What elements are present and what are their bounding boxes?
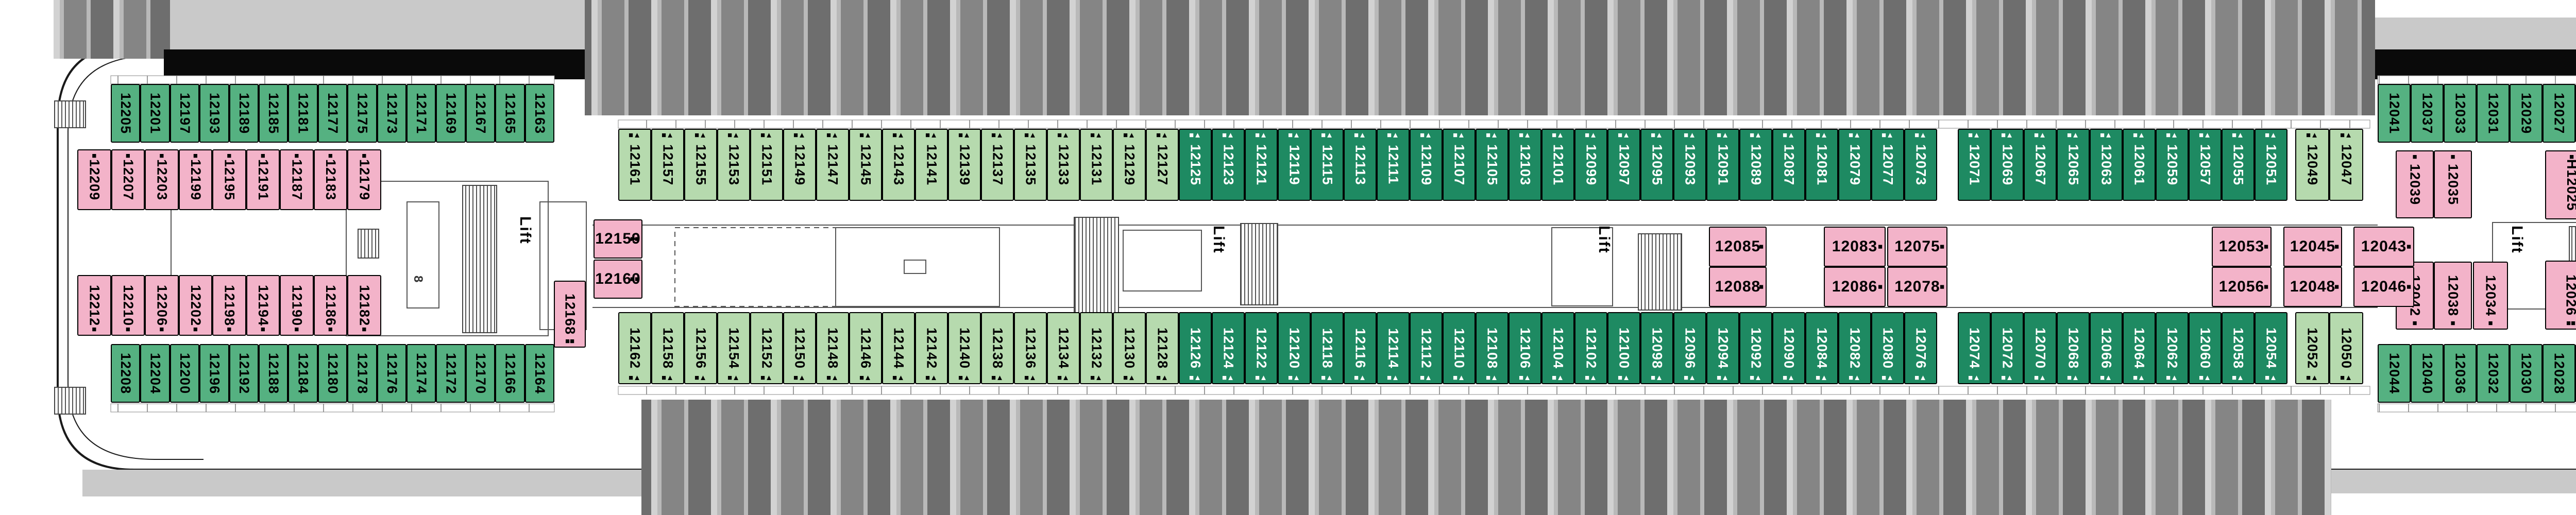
cabin-number: 12165 — [502, 93, 518, 134]
berth-icon: ■ — [146, 325, 178, 333]
cabin-12071[interactable]: ■▲12071 — [1958, 129, 1991, 201]
cabin-12156[interactable]: ■▲12156 — [684, 312, 717, 384]
cabin-12182[interactable]: ■12182 — [347, 275, 381, 336]
cabin-number: 12154 — [726, 328, 742, 369]
cabin-12064[interactable]: ■▲12064 — [2123, 312, 2156, 384]
berth-icon: ■▲ — [2223, 374, 2253, 382]
cabin-12122[interactable]: ■▲12122 — [1245, 312, 1278, 384]
cabin-12063[interactable]: ■▲12063 — [2090, 129, 2123, 201]
cabin-12178[interactable]: 12178 — [347, 344, 377, 403]
cabin-12052[interactable]: ■▲12052 — [2295, 312, 2329, 384]
cabin-12080[interactable]: ■▲12080 — [1871, 312, 1904, 384]
berth-icon: ■▲ — [619, 374, 650, 382]
cabin-12179[interactable]: ■12179 — [347, 149, 381, 210]
berth-icon: ■▲ — [2058, 131, 2089, 139]
cabin-12049[interactable]: ■▲12049 — [2295, 129, 2329, 201]
cabin-12040[interactable]: 12040 — [2411, 344, 2444, 403]
cabin-number: 12087 — [1781, 144, 1797, 185]
cabin-12077[interactable]: ■▲12077 — [1871, 129, 1904, 201]
cabin-12131[interactable]: ■▲12131 — [1080, 129, 1113, 201]
cabin-12171[interactable]: 12171 — [406, 84, 436, 143]
cabin-12200[interactable]: 12200 — [170, 344, 199, 403]
cabin-12154[interactable]: ■▲12154 — [717, 312, 750, 384]
cabin-12208[interactable]: 12208 — [111, 344, 140, 403]
berth-icon: ■▲ — [1147, 374, 1178, 382]
cabin-12203[interactable]: ■12203 — [145, 149, 179, 210]
berth-icon: ■▲ — [1806, 374, 1837, 382]
cabin-12146[interactable]: ■▲12146 — [849, 312, 882, 384]
cabin-12082[interactable]: ■▲12082 — [1838, 312, 1871, 384]
cabin-number: 12093 — [1682, 144, 1698, 185]
berth-icon: ■▲ — [949, 374, 980, 382]
berth-icon: ■▲ — [2124, 374, 2155, 382]
cabin-number: 12051 — [2263, 144, 2279, 185]
cabin-12085[interactable]: ■12085 — [1709, 227, 1767, 267]
cabin-number: 12141 — [924, 144, 940, 185]
cabin-12045[interactable]: ■12045 — [2283, 227, 2342, 267]
cabin-number: 12152 — [759, 328, 775, 369]
cabin-12032[interactable]: 12032 — [2477, 344, 2510, 403]
cabin-number: 12197 — [177, 93, 193, 134]
cabin-12087[interactable]: ■▲12087 — [1772, 129, 1805, 201]
cabin-12055[interactable]: ■▲12055 — [2222, 129, 2255, 201]
cabin-number: 12028 — [2551, 353, 2567, 394]
cabin-12190[interactable]: ■12190 — [280, 275, 314, 336]
berth-icon: ■▲ — [1543, 374, 1573, 382]
cabin-number: 12144 — [891, 328, 907, 369]
cabin-12160[interactable]: ■■12160 — [594, 260, 642, 299]
berth-icon: ■▲ — [2256, 374, 2286, 382]
cabin-12105[interactable]: ■▲12105 — [1476, 129, 1509, 201]
cabin-number: 12116 — [1352, 328, 1368, 369]
cabin-12186[interactable]: ■12186 — [314, 275, 348, 336]
cabin-12068[interactable]: ■▲12068 — [2057, 312, 2090, 384]
berth-icon: ■ — [112, 325, 144, 333]
berth-icon: ■▲ — [2025, 374, 2056, 382]
berth-icon: ■■ — [555, 337, 585, 345]
cabin-12070[interactable]: ■▲12070 — [2024, 312, 2057, 384]
cabin-12132[interactable]: ■▲12132 — [1080, 312, 1113, 384]
cabin-number: 12149 — [792, 144, 808, 185]
berth-icon: ■▲ — [1378, 374, 1409, 382]
cabin-12198[interactable]: ■12198 — [212, 275, 246, 336]
cabin-number: 12147 — [825, 144, 841, 185]
cabin-12137[interactable]: ■▲12137 — [981, 129, 1014, 201]
cabin-12053[interactable]: ■12053 — [2212, 227, 2272, 267]
cabin-number: 12109 — [1418, 144, 1434, 185]
cabin-number: 12153 — [726, 144, 742, 185]
cabin-12158[interactable]: ■▲12158 — [651, 312, 684, 384]
cabin-number: 12156 — [693, 328, 709, 369]
cabin-number: 12079 — [1847, 144, 1863, 185]
cabin-12067[interactable]: ■▲12067 — [2024, 129, 2057, 201]
cabin-number: 12111 — [1385, 145, 1401, 184]
cabin-number: 12092 — [1748, 328, 1764, 369]
cabin-12108[interactable]: ■▲12108 — [1476, 312, 1509, 384]
cabin-12165[interactable]: 12165 — [495, 84, 524, 143]
berth-icon: ■▲ — [1959, 131, 1990, 139]
cabin-number: 12132 — [1089, 328, 1105, 369]
berth-icon: ■ — [2397, 319, 2433, 327]
cabin-number: 12108 — [1484, 328, 1500, 369]
cabin-12035[interactable]: ■12035 — [2434, 150, 2472, 218]
cabin-number: 12027 — [2551, 93, 2567, 134]
cabin-12061[interactable]: ■▲12061 — [2123, 129, 2156, 201]
berth-icon: ■▲ — [1180, 374, 1211, 382]
cabin-12195[interactable]: ■12195 — [212, 149, 246, 210]
cabin-12136[interactable]: ■▲12136 — [1014, 312, 1047, 384]
cabin-12147[interactable]: ■▲12147 — [816, 129, 849, 201]
cabin-12093[interactable]: ■▲12093 — [1673, 129, 1706, 201]
cabin-12125[interactable]: ■▲12125 — [1179, 129, 1212, 201]
cabin-12126[interactable]: ■▲12126 — [1179, 312, 1212, 384]
cabin-12088[interactable]: ■12088 — [1709, 267, 1767, 307]
berth-icon: ■▲ — [883, 374, 914, 382]
berth-icon: ■▲ — [1411, 374, 1442, 382]
cabin-12153[interactable]: ■▲12153 — [717, 129, 750, 201]
cabin-number: 12184 — [295, 353, 311, 394]
cabin-12123[interactable]: ■▲12123 — [1212, 129, 1245, 201]
cabin-number: 12054 — [2263, 328, 2279, 369]
cabin-12143[interactable]: ■▲12143 — [882, 129, 915, 201]
berth-icon: ■ — [2264, 283, 2268, 291]
cabin-12159[interactable]: ■■12159 — [594, 219, 642, 259]
cabin-12162[interactable]: ■▲12162 — [618, 312, 651, 384]
cabin-number: 12107 — [1451, 144, 1467, 185]
cabin-12065[interactable]: ■▲12065 — [2057, 129, 2090, 201]
cabin-12196[interactable]: 12196 — [199, 344, 229, 403]
cabin-number: 12173 — [384, 93, 400, 134]
cabin-12180[interactable]: 12180 — [318, 344, 347, 403]
cabin-12133[interactable]: ■▲12133 — [1047, 129, 1080, 201]
cabin-12167[interactable]: 12167 — [466, 84, 495, 143]
berth-icon: ■▲ — [1543, 131, 1573, 139]
cabin-12197[interactable]: 12197 — [170, 84, 199, 143]
cabin-12204[interactable]: 12204 — [140, 344, 170, 403]
cabin-12177[interactable]: 12177 — [318, 84, 347, 143]
cabin-12151[interactable]: ■▲12151 — [750, 129, 783, 201]
cabin-number: 12195 — [221, 159, 237, 200]
cabin-12170[interactable]: 12170 — [466, 344, 495, 403]
cabin-12173[interactable]: 12173 — [377, 84, 406, 143]
cabin-layer: 1220512201121971219312189121851218112177… — [0, 0, 2576, 515]
cabin-number: 12182 — [356, 285, 372, 326]
cabin-12202[interactable]: ■12202 — [179, 275, 213, 336]
cabin-12057[interactable]: ■▲12057 — [2189, 129, 2222, 201]
cabin-12083[interactable]: ■12083 — [1824, 227, 1886, 267]
cabin-12141[interactable]: ■▲12141 — [915, 129, 948, 201]
cabin-12099[interactable]: ■▲12099 — [1574, 129, 1607, 201]
cabin-number: 12168 — [562, 294, 578, 335]
cabin-12187[interactable]: ■12187 — [280, 149, 314, 210]
cabin-number: 12095 — [1649, 144, 1665, 185]
berth-icon: ■▲ — [1444, 131, 1475, 139]
berth-icon: ■▲ — [1740, 374, 1771, 382]
berth-icon: ■▲ — [1608, 131, 1639, 139]
cabin-12107[interactable]: ■▲12107 — [1443, 129, 1476, 201]
cabin-number: 12176 — [384, 353, 400, 394]
cabin-12193[interactable]: 12193 — [199, 84, 229, 143]
cabin-12038[interactable]: ■12038 — [2434, 262, 2472, 330]
cabin-number: 12059 — [2164, 144, 2180, 185]
cabin-12036[interactable]: 12036 — [2444, 344, 2477, 403]
cabin-12079[interactable]: ■▲12079 — [1838, 129, 1871, 201]
cabin-12139[interactable]: ■▲12139 — [948, 129, 981, 201]
cabin-12155[interactable]: ■▲12155 — [684, 129, 717, 201]
cabin-12054[interactable]: ■▲12054 — [2255, 312, 2287, 384]
cabin-12033[interactable]: 12033 — [2444, 84, 2477, 143]
cabin-number: 12067 — [2032, 144, 2048, 185]
cabin-12078[interactable]: ■12078 — [1887, 267, 1947, 307]
cabin-12124[interactable]: ■▲12124 — [1212, 312, 1245, 384]
cabin-12073[interactable]: ■▲12073 — [1904, 129, 1937, 201]
cabin-12090[interactable]: ■▲12090 — [1772, 312, 1805, 384]
cabin-number: 12202 — [188, 285, 204, 326]
lift-label: Lift — [2508, 226, 2526, 254]
cabin-12188[interactable]: 12188 — [259, 344, 288, 403]
cabin-number: 12058 — [2230, 328, 2246, 369]
cabin-number: 12161 — [627, 144, 643, 185]
cabin-12100[interactable]: ■▲12100 — [1607, 312, 1640, 384]
cabin-12181[interactable]: 12181 — [288, 84, 317, 143]
berth-icon: ■▲ — [2091, 131, 2122, 139]
cabin-12102[interactable]: ■▲12102 — [1574, 312, 1607, 384]
berth-icon: ■▲ — [1674, 131, 1705, 139]
cabin-12176[interactable]: 12176 — [377, 344, 406, 403]
cabin-number: 12174 — [413, 353, 429, 394]
cabin-12140[interactable]: ■▲12140 — [948, 312, 981, 384]
cabin-12118[interactable]: ■▲12118 — [1311, 312, 1344, 384]
berth-icon: ■▲ — [1806, 131, 1837, 139]
cabin-12096[interactable]: ■▲12096 — [1673, 312, 1706, 384]
cabin-12130[interactable]: ■▲12130 — [1113, 312, 1146, 384]
cabin-12026[interactable]: ■■12026 — [2545, 261, 2576, 330]
cabin-12027[interactable]: 12027 — [2543, 84, 2575, 143]
cabin-12144[interactable]: ■▲12144 — [882, 312, 915, 384]
cabin-12111[interactable]: ■▲12111 — [1377, 129, 1410, 201]
cabin-12128[interactable]: ■▲12128 — [1146, 312, 1179, 384]
cabin-12148[interactable]: ■▲12148 — [816, 312, 849, 384]
cabin-12060[interactable]: ■▲12060 — [2189, 312, 2222, 384]
cabin-number: 12125 — [1188, 144, 1204, 185]
cabin-12205[interactable]: 12205 — [111, 84, 140, 143]
berth-icon: ■▲ — [1114, 374, 1145, 382]
berth-icon: ■▲ — [1081, 374, 1112, 382]
cabin-12034[interactable]: ■12034 — [2473, 262, 2508, 330]
cabin-12059[interactable]: ■▲12059 — [2156, 129, 2189, 201]
cabin-12101[interactable]: ■▲12101 — [1541, 129, 1574, 201]
berth-icon: ■ — [348, 325, 380, 333]
cabin-12157[interactable]: ■▲12157 — [651, 129, 684, 201]
cabin-12145[interactable]: ■▲12145 — [849, 129, 882, 201]
berth-icon: ■▲ — [1180, 131, 1211, 139]
cabin-number: 12151 — [759, 144, 775, 185]
cabin-number: 12075 — [1894, 238, 1940, 255]
cabin-12044[interactable]: 12044 — [2378, 344, 2411, 403]
cabin-12206[interactable]: ■12206 — [145, 275, 179, 336]
cabin-12114[interactable]: ■▲12114 — [1377, 312, 1410, 384]
cabin-12066[interactable]: ■▲12066 — [2090, 312, 2123, 384]
cabin-12086[interactable]: ■12086 — [1824, 267, 1886, 307]
berth-icon: ■▲ — [1773, 131, 1804, 139]
cabin-number: 12076 — [1913, 328, 1929, 369]
cabin-12029[interactable]: 12029 — [2510, 84, 2543, 143]
cabin-12168[interactable]: ■■12168 — [554, 281, 586, 348]
berth-icon: ■▲ — [619, 131, 650, 139]
berth-icon: ■ — [213, 325, 245, 333]
cabin-12074[interactable]: ■▲12074 — [1958, 312, 1991, 384]
cabin-12183[interactable]: ■12183 — [314, 149, 348, 210]
cabin-12149[interactable]: ■▲12149 — [783, 129, 816, 201]
cabin-12150[interactable]: ■▲12150 — [783, 312, 816, 384]
cabin-12072[interactable]: ■▲12072 — [1991, 312, 2024, 384]
berth-icon: ■ — [1940, 243, 1944, 251]
cabin-12094[interactable]: ■▲12094 — [1706, 312, 1739, 384]
cabin-12164[interactable]: 12164 — [525, 344, 554, 403]
cabin-12110[interactable]: ■▲12110 — [1443, 312, 1476, 384]
berth-icon: ■▲ — [1081, 131, 1112, 139]
cabin-12209[interactable]: ■12209 — [77, 149, 111, 210]
cabin-12046[interactable]: ■12046 — [2353, 267, 2414, 307]
cabin-number: 12167 — [472, 93, 488, 134]
cabin-number: 12171 — [413, 93, 429, 134]
cabin-12031[interactable]: 12031 — [2477, 84, 2510, 143]
cabin-12081[interactable]: ■▲12081 — [1805, 129, 1838, 201]
cabin-12201[interactable]: 12201 — [140, 84, 170, 143]
cabin-number: 12126 — [1188, 328, 1204, 369]
cabin-12109[interactable]: ■▲12109 — [1410, 129, 1443, 201]
berth-icon: ■ — [2334, 243, 2339, 251]
cabin-number: 12155 — [693, 144, 709, 185]
cabin-number: 12194 — [255, 285, 271, 326]
berth-icon: ■■ — [2546, 319, 2576, 327]
cabin-12056[interactable]: ■12056 — [2212, 267, 2272, 307]
cabin-12172[interactable]: 12172 — [436, 344, 465, 403]
cabin-12113[interactable]: ■▲12113 — [1344, 129, 1377, 201]
cabin-12075[interactable]: ■12075 — [1887, 227, 1947, 267]
cabin-12084[interactable]: ■▲12084 — [1805, 312, 1838, 384]
cabin-12174[interactable]: 12174 — [406, 344, 436, 403]
cabin-12106[interactable]: ■▲12106 — [1509, 312, 1541, 384]
cabin-12185[interactable]: 12185 — [259, 84, 288, 143]
cabin-12207[interactable]: ■12207 — [111, 149, 145, 210]
cabin-12191[interactable]: ■12191 — [246, 149, 280, 210]
cabin-12192[interactable]: 12192 — [229, 344, 259, 403]
berth-icon: ■ — [1940, 283, 1944, 291]
cabin-number: 12128 — [1155, 328, 1171, 369]
cabin-12047[interactable]: ■▲12047 — [2329, 129, 2363, 201]
cabin-12142[interactable]: ■▲12142 — [915, 312, 948, 384]
berth-icon: ■ — [2406, 283, 2411, 291]
cabin-number: 12188 — [265, 353, 281, 394]
berth-icon: ■▲ — [1213, 374, 1244, 382]
cabin-12120[interactable]: ■▲12120 — [1278, 312, 1311, 384]
cabin-12039[interactable]: ■12039 — [2396, 150, 2434, 218]
berth-icon: ■▲ — [1641, 131, 1672, 139]
cabin-12161[interactable]: ■▲12161 — [618, 129, 651, 201]
cabin-12210[interactable]: ■12210 — [111, 275, 145, 336]
cabin-12103[interactable]: ■▲12103 — [1509, 129, 1541, 201]
cabin-12112[interactable]: ■▲12112 — [1410, 312, 1443, 384]
cabin-12175[interactable]: 12175 — [347, 84, 377, 143]
cabin-12058[interactable]: ■▲12058 — [2222, 312, 2255, 384]
cabin-12076[interactable]: ■▲12076 — [1904, 312, 1937, 384]
cabin-number: 12049 — [2304, 144, 2320, 185]
berth-icon: ■ — [247, 152, 279, 160]
cabin-12127[interactable]: ■▲12127 — [1146, 129, 1179, 201]
cabin-12037[interactable]: 12037 — [2411, 84, 2444, 143]
cabin-number: 12192 — [236, 353, 252, 394]
cabin-12115[interactable]: ■▲12115 — [1311, 129, 1344, 201]
cabin-number: 12135 — [1023, 144, 1039, 185]
cabin-12129[interactable]: ■▲12129 — [1113, 129, 1146, 201]
cabin-12163[interactable]: 12163 — [525, 84, 554, 143]
berth-icon: ■▲ — [1312, 374, 1343, 382]
cabin-H12025[interactable]: ■H12025 — [2545, 150, 2576, 219]
cabin-number: 12096 — [1682, 328, 1698, 369]
berth-icon: ■ — [1878, 283, 1883, 291]
cabin-12095[interactable]: ■▲12095 — [1640, 129, 1673, 201]
cabin-12104[interactable]: ■▲12104 — [1541, 312, 1574, 384]
cabin-12089[interactable]: ■▲12089 — [1739, 129, 1772, 201]
cabin-12166[interactable]: 12166 — [495, 344, 524, 403]
cabin-number: 12130 — [1122, 328, 1138, 369]
cabin-number: 12035 — [2445, 164, 2461, 205]
berth-icon: ■▲ — [1015, 374, 1046, 382]
berth-icon: ■▲ — [2223, 131, 2253, 139]
cabin-12121[interactable]: ■▲12121 — [1245, 129, 1278, 201]
cabin-12043[interactable]: ■12043 — [2353, 227, 2414, 267]
cabin-12041[interactable]: 12041 — [2378, 84, 2411, 143]
cabin-12048[interactable]: ■12048 — [2283, 267, 2342, 307]
cabin-12152[interactable]: ■▲12152 — [750, 312, 783, 384]
cabin-12030[interactable]: 12030 — [2510, 344, 2543, 403]
cabin-12062[interactable]: ■▲12062 — [2156, 312, 2189, 384]
cabin-12189[interactable]: 12189 — [229, 84, 259, 143]
cabin-12135[interactable]: ■▲12135 — [1014, 129, 1047, 201]
cabin-12199[interactable]: ■12199 — [179, 149, 213, 210]
cabin-number: 12164 — [532, 353, 548, 394]
cabin-number: 12175 — [354, 93, 370, 134]
cabin-12051[interactable]: ■▲12051 — [2255, 129, 2287, 201]
cabin-12184[interactable]: 12184 — [288, 344, 317, 403]
berth-icon: ■ — [1878, 243, 1883, 251]
cabin-12069[interactable]: ■▲12069 — [1991, 129, 2024, 201]
cabin-12050[interactable]: ■▲12050 — [2329, 312, 2363, 384]
cabin-12116[interactable]: ■▲12116 — [1344, 312, 1377, 384]
cabin-number: 12085 — [1715, 238, 1760, 255]
cabin-12097[interactable]: ■▲12097 — [1607, 129, 1640, 201]
cabin-12169[interactable]: 12169 — [436, 84, 465, 143]
cabin-12134[interactable]: ■▲12134 — [1047, 312, 1080, 384]
cabin-number: H12025 — [2564, 159, 2576, 211]
cabin-12098[interactable]: ■▲12098 — [1640, 312, 1673, 384]
cabin-12091[interactable]: ■▲12091 — [1706, 129, 1739, 201]
cabin-12028[interactable]: 12028 — [2543, 344, 2575, 403]
cabin-12119[interactable]: ■▲12119 — [1278, 129, 1311, 201]
berth-icon: ■▲ — [1839, 131, 1870, 139]
cabin-12212[interactable]: ■12212 — [77, 275, 111, 336]
berth-icon: ■▲ — [1477, 374, 1507, 382]
cabin-12194[interactable]: ■12194 — [246, 275, 280, 336]
cabin-number: 12055 — [2230, 144, 2246, 185]
cabin-number: 12139 — [957, 144, 973, 185]
berth-icon: ■▲ — [685, 374, 716, 382]
cabin-number: 12110 — [1451, 328, 1467, 369]
berth-icon: ■▲ — [916, 131, 947, 139]
cabin-12138[interactable]: ■▲12138 — [981, 312, 1014, 384]
cabin-12092[interactable]: ■▲12092 — [1739, 312, 1772, 384]
